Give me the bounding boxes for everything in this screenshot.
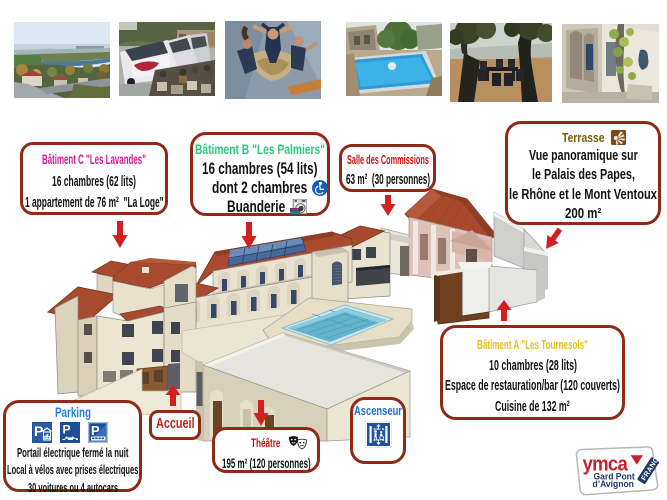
svg-text:d’Avignon: d’Avignon bbox=[593, 479, 634, 490]
svg-text:P: P bbox=[62, 423, 70, 437]
svg-text:P: P bbox=[91, 423, 100, 438]
svg-text:P: P bbox=[34, 423, 43, 439]
